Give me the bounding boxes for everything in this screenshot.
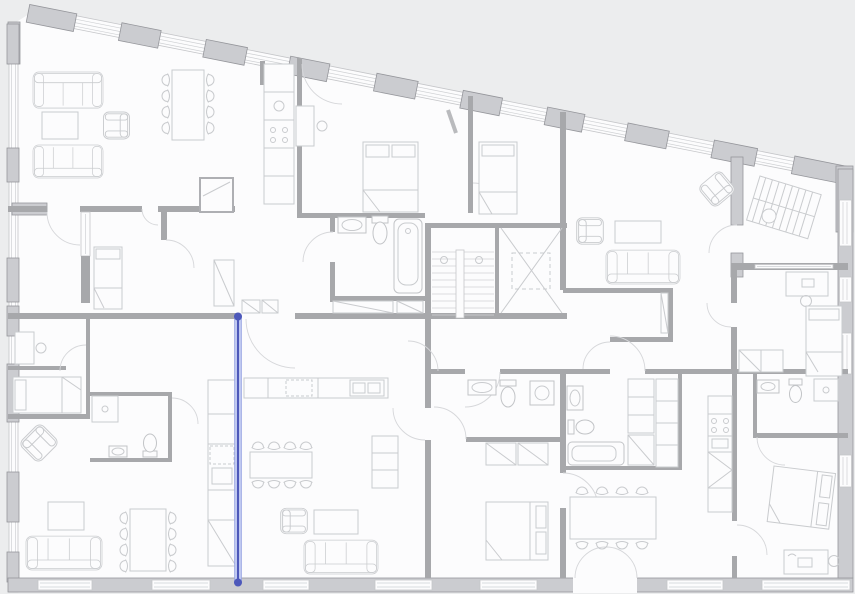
kitchen-counter (244, 378, 388, 398)
dresser (372, 436, 398, 488)
armchair (577, 218, 604, 244)
sink (468, 380, 496, 395)
double-bed (363, 142, 418, 212)
double-bed (486, 502, 548, 560)
kitchen-tall-units (208, 380, 236, 566)
bathroom-cabinets (628, 379, 678, 467)
toilet (143, 434, 157, 457)
west-facade-window-band (7, 24, 19, 592)
wardrobe (242, 300, 278, 313)
kitchen-run (708, 396, 732, 512)
sink (338, 217, 366, 233)
double-bed (806, 306, 842, 376)
south-facade (8, 576, 853, 593)
wardrobe (739, 350, 783, 372)
round-side-table (762, 209, 776, 223)
sofa (606, 250, 680, 284)
sink (109, 446, 127, 457)
toilet (372, 216, 388, 244)
armchair (281, 508, 308, 534)
sofa (33, 145, 103, 178)
sink (757, 380, 779, 393)
washing-machine (530, 381, 554, 405)
double-bed-rotated (767, 466, 835, 529)
stair-rail (456, 250, 464, 318)
walk-in-closet (661, 293, 668, 333)
corner-closet (200, 178, 233, 212)
armchair (103, 112, 129, 139)
bathtub (568, 442, 624, 465)
sofa (304, 540, 378, 574)
toilet (568, 420, 594, 434)
coffee-table (615, 221, 661, 243)
closet (333, 301, 423, 313)
bathtub (394, 219, 422, 293)
measure-endpoint-top[interactable] (234, 313, 242, 321)
sofa (33, 72, 103, 108)
sink (567, 386, 583, 410)
toilet (500, 380, 516, 407)
single-bed (94, 247, 122, 309)
selected-wall-highlight[interactable] (234, 313, 242, 587)
coffee-table (314, 510, 358, 534)
single-bed (479, 142, 517, 214)
hall-closet (214, 260, 234, 306)
sofa (26, 536, 102, 570)
toilet (789, 379, 802, 403)
coffee-table (42, 112, 78, 139)
measure-endpoint-bottom[interactable] (234, 579, 242, 587)
entrance-opening (573, 576, 637, 593)
double-bed (13, 377, 81, 413)
floor-plan-canvas (0, 0, 855, 594)
floor-plan-drawing (0, 0, 855, 594)
coffee-table (48, 502, 84, 530)
kitchen-run (264, 64, 294, 204)
